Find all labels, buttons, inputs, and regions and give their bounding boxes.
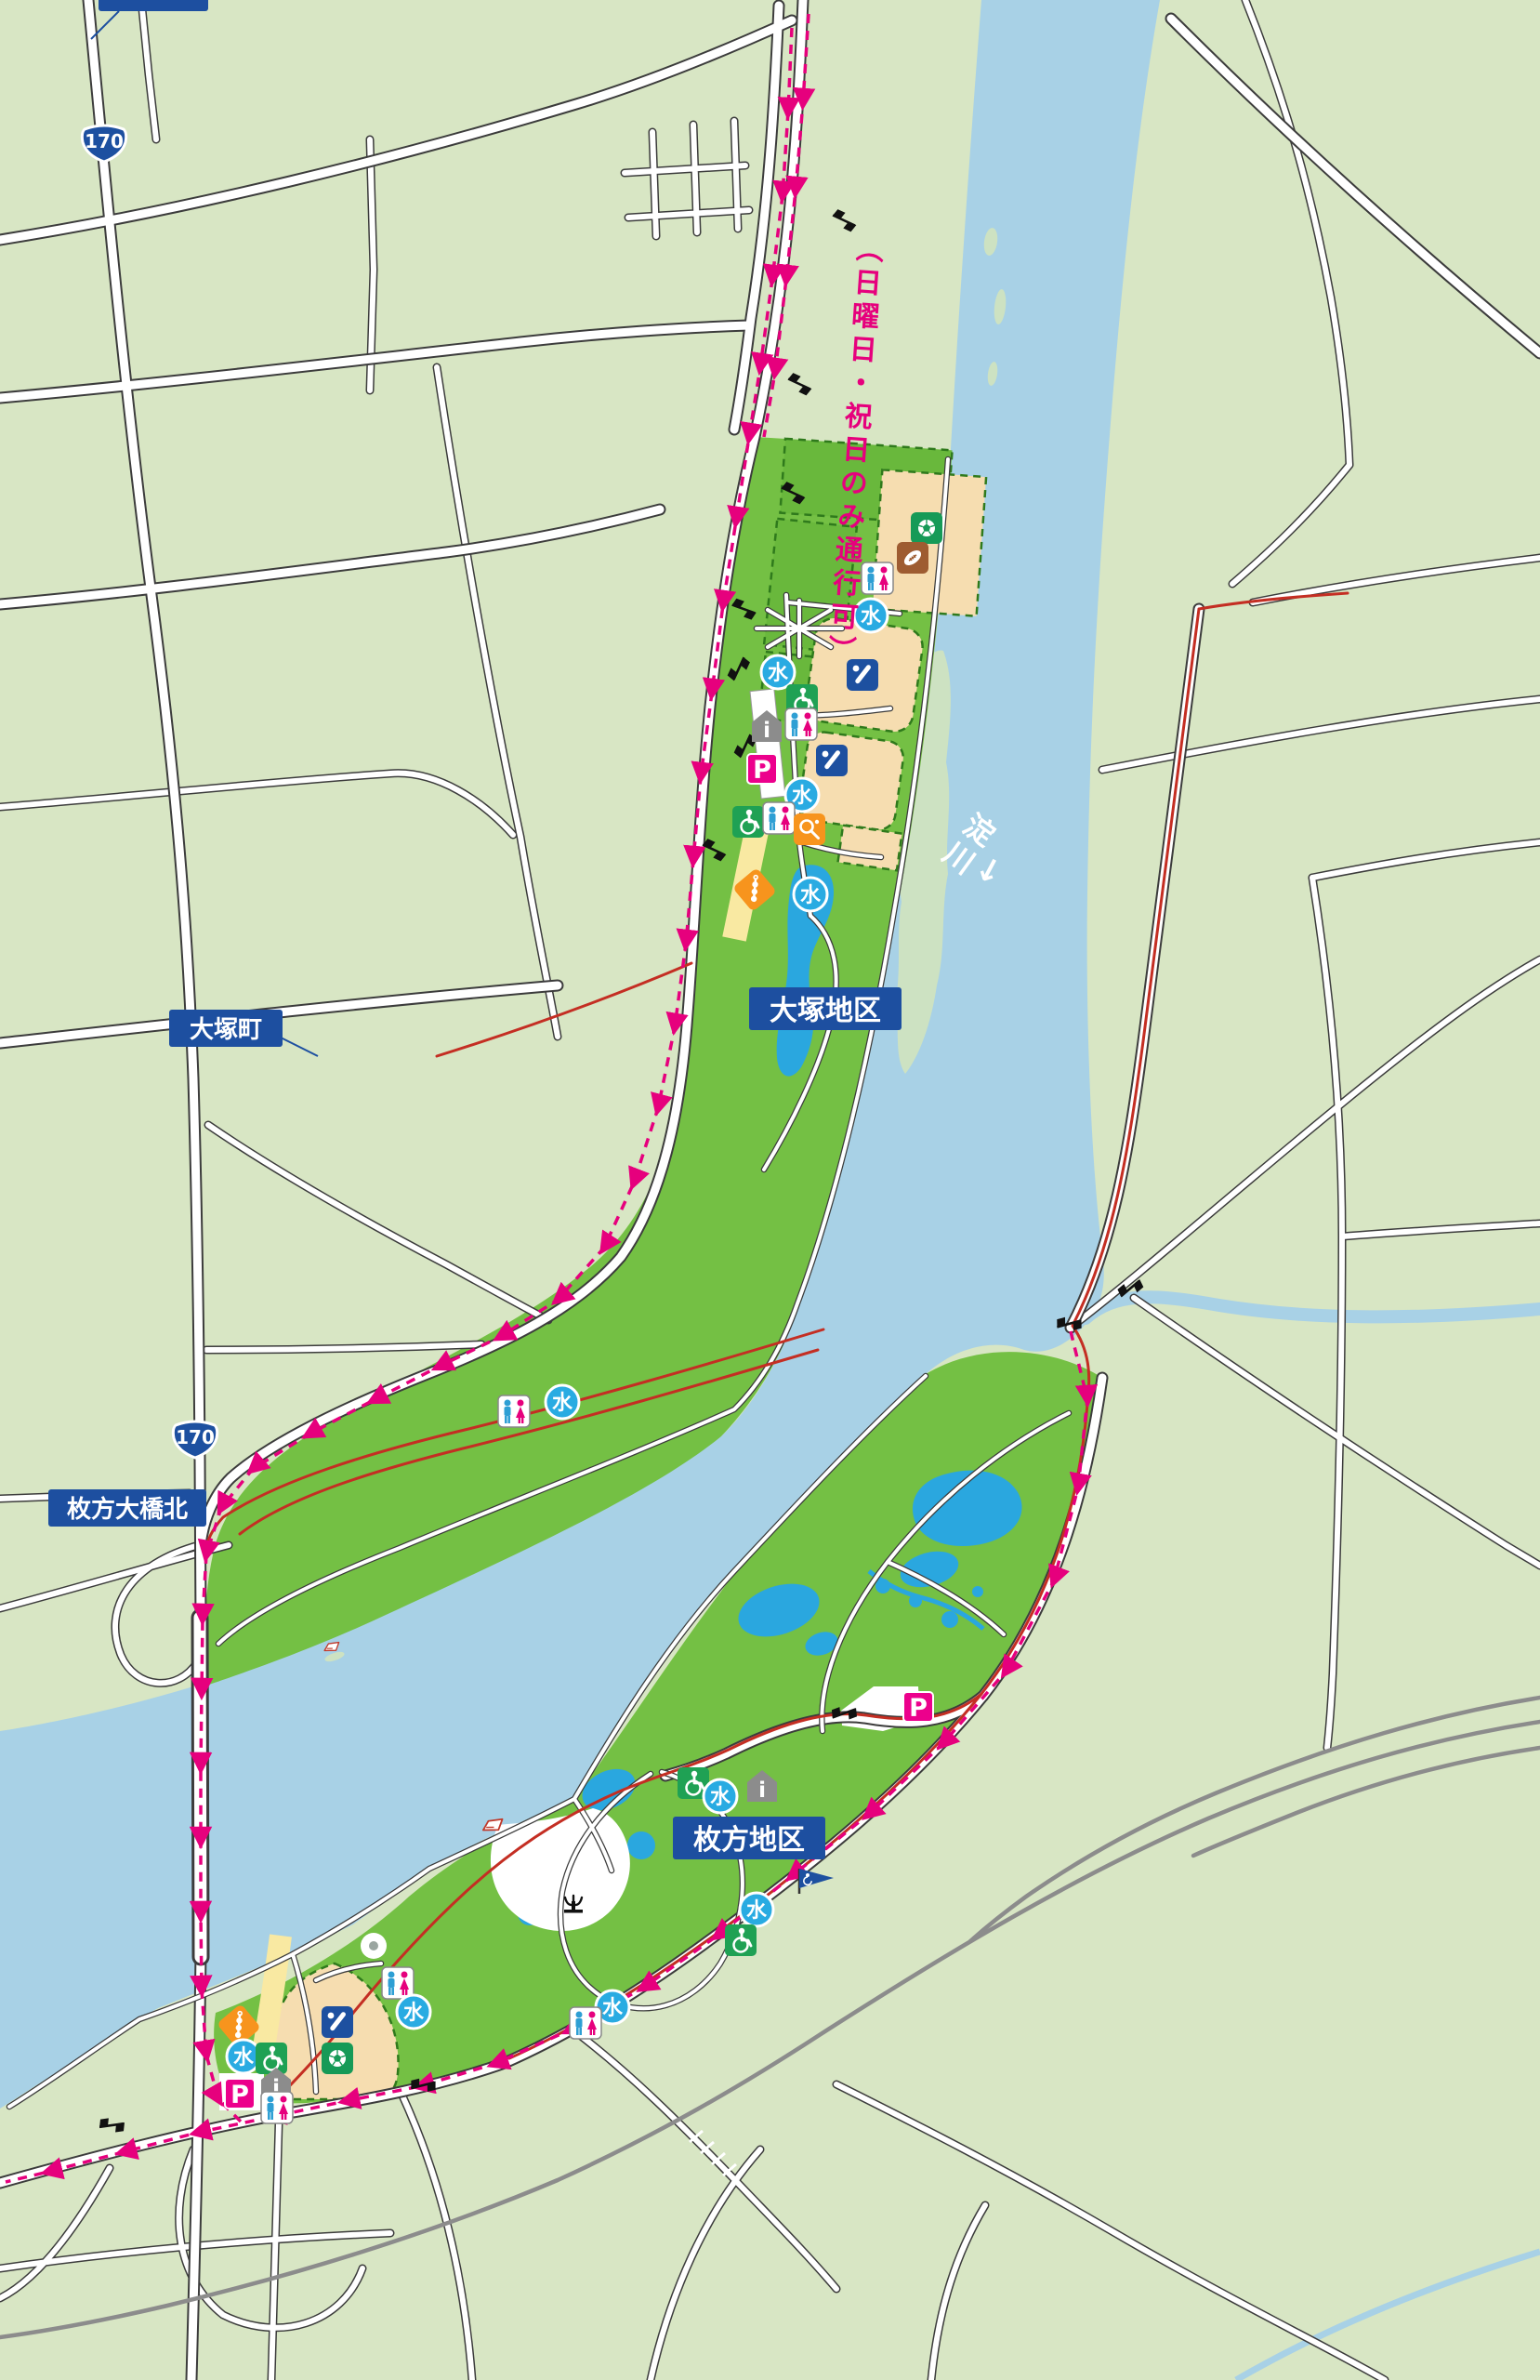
intersection-label-hirakata-ohashi-kita: 枚方大橋北 (48, 1489, 206, 1527)
wheelchair-icon (725, 1924, 757, 1956)
round-pond (627, 1831, 655, 1859)
water-icon (740, 1893, 773, 1926)
marsh-pool (972, 1586, 983, 1597)
water-icon (761, 655, 795, 689)
hirakata-district-text: 枚方地区 (693, 1824, 805, 1857)
toilet-icon (785, 708, 817, 740)
water-icon (227, 2040, 260, 2073)
baseball-icon (322, 2006, 353, 2038)
circle-plaza-center (369, 1941, 378, 1950)
marsh-pool (875, 1579, 890, 1593)
toilet-icon (763, 802, 795, 834)
soccer-icon (911, 512, 942, 544)
park-map: 水 i P (0, 0, 1540, 2380)
parking-icon (225, 2079, 255, 2109)
toilet-icon (382, 1967, 414, 1999)
soccer-icon (322, 2043, 353, 2074)
toilet-icon (570, 2007, 601, 2039)
toilet-icon (862, 562, 893, 594)
hirakata-ohashi-kita-text: 枚方大橋北 (67, 1495, 188, 1524)
water-icon (704, 1779, 737, 1813)
otsuka-district-text: 大塚地区 (770, 995, 881, 1027)
tennis-icon (794, 813, 825, 845)
parking-icon (903, 1692, 933, 1723)
toilet-icon (261, 2092, 293, 2123)
district-label-otsuka: 大塚地区 (749, 987, 902, 1030)
parking-icon (747, 754, 777, 785)
wheelchair-icon (256, 2043, 287, 2074)
district-label-hirakata: 枚方地区 (673, 1817, 825, 1859)
otsuka-cho-text: 大塚町 (190, 1016, 262, 1044)
water-icon (397, 1995, 430, 2029)
rugby-icon (897, 542, 928, 574)
water-icon (794, 878, 827, 911)
marsh-pool (909, 1594, 922, 1607)
park-map-canvas: 水 i P (0, 0, 1540, 2380)
toilet-icon (498, 1395, 530, 1427)
marsh-pool (941, 1611, 958, 1628)
water-icon (546, 1385, 579, 1419)
baseball-icon (816, 745, 848, 776)
wheelchair-icon (732, 806, 764, 838)
water-icon (854, 599, 888, 632)
